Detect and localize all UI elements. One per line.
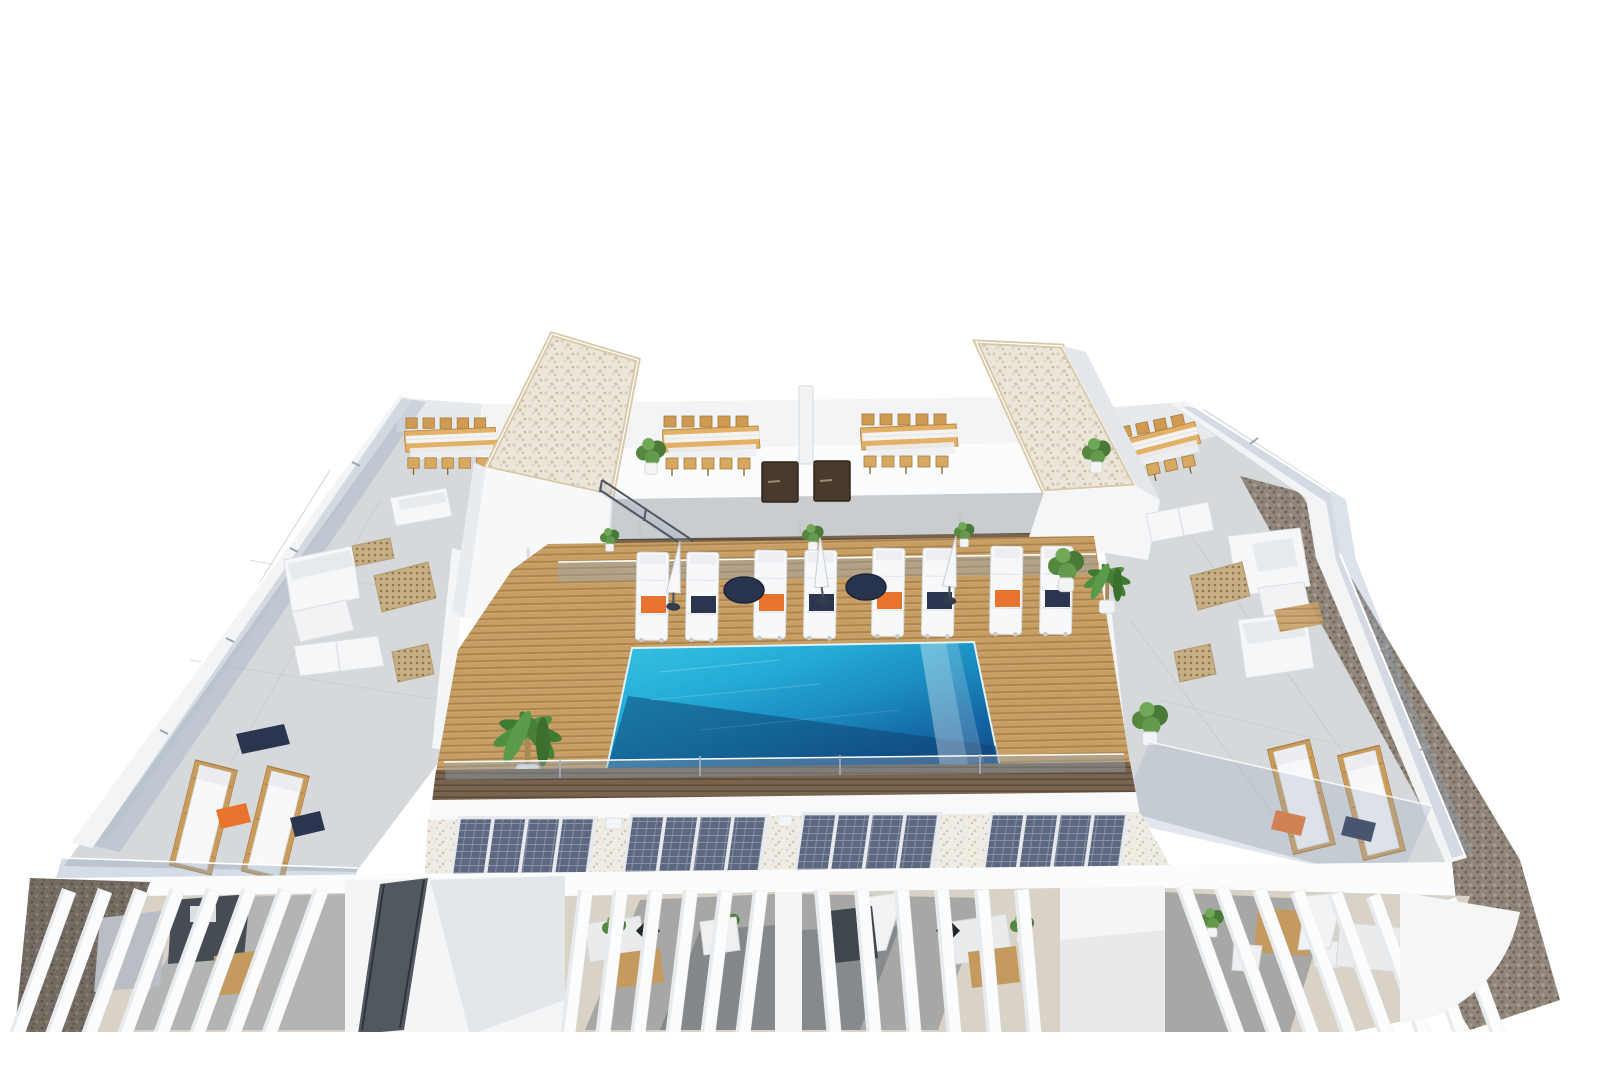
round-side-table-2 [846, 574, 886, 600]
solar-panel-array-2 [621, 814, 770, 876]
rooftop-render: Aerial 3D architectural rendering of a r… [0, 0, 1600, 1067]
towel-navy [691, 596, 716, 613]
roof-vent-box [606, 818, 622, 829]
pergola-section-3 [802, 888, 1060, 1049]
towel-orange [641, 596, 666, 613]
towel-orange [759, 594, 784, 611]
towel-navy [1045, 590, 1070, 607]
towel-orange [995, 590, 1020, 607]
chimney [799, 386, 813, 464]
pergola-wall-gap-2 [775, 892, 802, 1032]
pergola-wall-gap-3 [1060, 886, 1165, 1034]
pergola-section-2 [559, 890, 775, 1051]
pergola-wall-gap-1 [345, 876, 565, 1035]
round-side-table-1 [724, 577, 764, 603]
solar-panel-array-3 [793, 812, 942, 874]
solar-panel-array-4 [981, 812, 1130, 874]
render-canvas [0, 0, 1600, 1067]
pool-fascia-and-parapet [428, 754, 1140, 822]
swimming-pool [606, 642, 1000, 772]
solar-panel-array-1 [449, 816, 598, 878]
bottom-white-edge [0, 1032, 1600, 1067]
roof-vent-box [778, 816, 792, 826]
